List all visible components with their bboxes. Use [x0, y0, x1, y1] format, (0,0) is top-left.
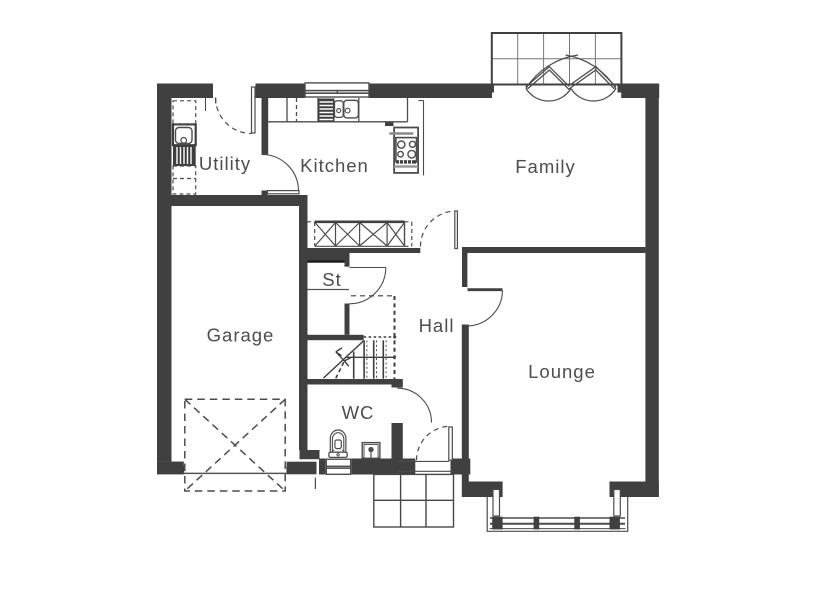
- svg-text:Garage: Garage: [207, 324, 275, 345]
- svg-text:Lounge: Lounge: [528, 361, 596, 382]
- svg-text:Utility: Utility: [199, 153, 251, 174]
- svg-text:St: St: [322, 269, 342, 290]
- svg-text:Hall: Hall: [419, 315, 455, 336]
- svg-text:Family: Family: [515, 156, 576, 177]
- svg-text:WC: WC: [342, 402, 375, 423]
- svg-text:Kitchen: Kitchen: [300, 155, 369, 176]
